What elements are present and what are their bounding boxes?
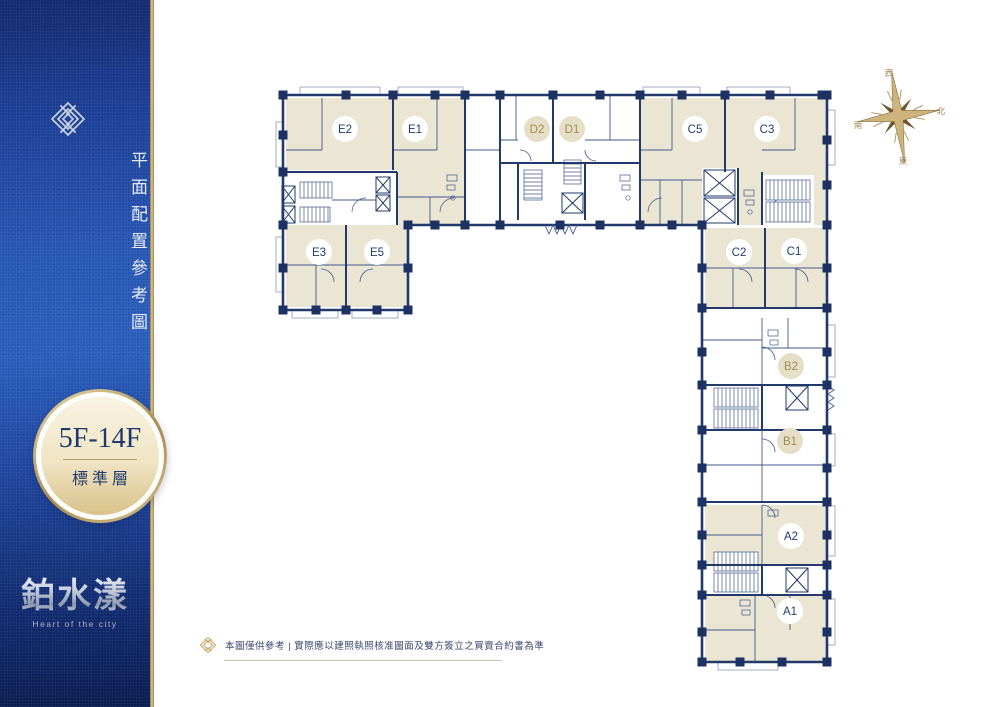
column <box>312 306 321 315</box>
compass-label-north: 北 <box>937 106 946 116</box>
column <box>279 91 288 100</box>
brand-knot-icon <box>48 100 88 144</box>
badge-ring: 5F-14F 標準層 <box>36 392 164 520</box>
column <box>698 348 707 357</box>
column <box>698 426 707 435</box>
unit-label-C3: C3 <box>754 116 780 142</box>
column <box>404 221 413 230</box>
column <box>279 168 288 177</box>
column <box>636 91 645 100</box>
stair-hatch <box>766 180 810 200</box>
column <box>678 91 687 100</box>
column <box>823 91 832 100</box>
column <box>823 591 832 600</box>
column <box>823 221 832 230</box>
badge-face: 5F-14F 標準層 <box>41 397 159 515</box>
column <box>823 628 832 637</box>
column <box>823 181 832 190</box>
svg-text:E2: E2 <box>338 124 352 136</box>
stair-hatch <box>766 202 810 222</box>
column <box>496 91 505 100</box>
column <box>823 264 832 273</box>
unit-label-D2: D2 <box>524 116 550 142</box>
unit-label-D1: D1 <box>559 116 585 142</box>
svg-text:C5: C5 <box>688 124 703 136</box>
unit-label-E1: E1 <box>402 116 428 142</box>
floor-type-label: 標準層 <box>72 465 132 489</box>
column <box>636 221 645 230</box>
column <box>698 561 707 570</box>
svg-text:B1: B1 <box>783 436 797 448</box>
compass: 西 北 南 東 <box>852 65 946 169</box>
stair-hatch <box>714 409 758 428</box>
column <box>373 306 382 315</box>
column <box>736 658 745 667</box>
column <box>823 498 832 507</box>
elevator-shaft <box>704 198 735 223</box>
svg-text:E1: E1 <box>408 124 422 136</box>
disclaimer-text: 本圖僅供參考 | 實際應以建照執照核准圖面及雙方簽立之買賣合約書為準 <box>225 638 544 652</box>
stair-hatch <box>714 573 758 592</box>
column <box>431 221 440 230</box>
svg-text:E5: E5 <box>370 247 384 259</box>
elevator-shaft <box>704 170 735 196</box>
sidebar-vertical-title: 平面配置參考圖 <box>0 150 150 340</box>
column <box>342 306 351 315</box>
stair-hatch <box>300 182 332 198</box>
column <box>404 264 413 273</box>
column <box>823 348 832 357</box>
compass-label-south: 南 <box>854 120 863 130</box>
column <box>461 221 470 230</box>
unit-label-C1: C1 <box>781 238 807 264</box>
compass-label-east: 東 <box>899 156 908 166</box>
svg-text:D2: D2 <box>530 124 545 136</box>
column <box>721 91 730 100</box>
unit-label-B1: B1 <box>777 428 803 454</box>
column <box>342 91 351 100</box>
column <box>279 131 288 140</box>
svg-text:D1: D1 <box>565 124 580 136</box>
column <box>404 306 413 315</box>
column <box>698 628 707 637</box>
stair-hatch <box>714 388 758 407</box>
badge-divider <box>63 459 137 460</box>
column <box>698 658 707 667</box>
stair-hatch <box>300 207 330 222</box>
disclaimer-underline <box>224 660 502 661</box>
knot-icon <box>199 636 217 654</box>
unit-label-E5: E5 <box>364 239 390 265</box>
stair-hatch <box>524 170 542 200</box>
column <box>778 658 787 667</box>
compass-label-west: 西 <box>885 68 894 78</box>
column <box>698 498 707 507</box>
elevator-shaft <box>376 177 390 193</box>
elevator-shaft <box>376 195 390 211</box>
column <box>596 221 605 230</box>
column <box>823 531 832 540</box>
column <box>496 221 505 230</box>
column <box>698 531 707 540</box>
column <box>823 136 832 145</box>
unit-label-C5: C5 <box>682 116 708 142</box>
floor-range: 5F-14F <box>59 425 141 453</box>
column <box>279 221 288 230</box>
column <box>461 91 470 100</box>
project-logo: 鉑水漾 <box>0 568 150 617</box>
column <box>823 561 832 570</box>
elevator-shaft <box>786 386 808 410</box>
column <box>823 426 832 435</box>
column <box>549 91 558 100</box>
column <box>596 91 605 100</box>
column <box>556 221 565 230</box>
svg-text:C3: C3 <box>760 124 775 136</box>
column <box>823 304 832 313</box>
column <box>698 591 707 600</box>
column <box>766 91 775 100</box>
column <box>279 306 288 315</box>
unit-label-A1: A1 <box>777 598 803 624</box>
column <box>823 464 832 473</box>
svg-text:C1: C1 <box>787 246 802 258</box>
svg-text:A2: A2 <box>784 531 798 543</box>
column <box>823 381 832 390</box>
elevator-shaft <box>562 193 583 213</box>
disclaimer: 本圖僅供參考 | 實際應以建照執照核准圖面及雙方簽立之買賣合約書為準 <box>199 636 544 654</box>
unit-label-C2: C2 <box>726 239 752 265</box>
gold-divider-line <box>150 0 154 707</box>
unit-label-E2: E2 <box>332 116 358 142</box>
unit-label-E3: E3 <box>306 239 332 265</box>
compass-star-major <box>852 65 946 169</box>
column <box>698 381 707 390</box>
column <box>698 464 707 473</box>
svg-text:C2: C2 <box>732 247 747 259</box>
floor-badge: 5F-14F 標準層 <box>33 389 167 523</box>
column <box>823 658 832 667</box>
column <box>431 91 440 100</box>
unit-label-A2: A2 <box>778 523 804 549</box>
column <box>668 221 677 230</box>
project-logo-subtitle: Heart of the city <box>0 619 150 629</box>
column <box>698 304 707 313</box>
column <box>389 91 398 100</box>
svg-text:A1: A1 <box>783 606 797 618</box>
column <box>698 264 707 273</box>
svg-text:E3: E3 <box>312 247 326 259</box>
svg-text:B2: B2 <box>784 361 798 373</box>
column <box>279 264 288 273</box>
unit-label-B2: B2 <box>778 353 804 379</box>
column <box>698 221 707 230</box>
stair-hatch <box>714 552 758 571</box>
elevator-shaft <box>786 568 808 592</box>
